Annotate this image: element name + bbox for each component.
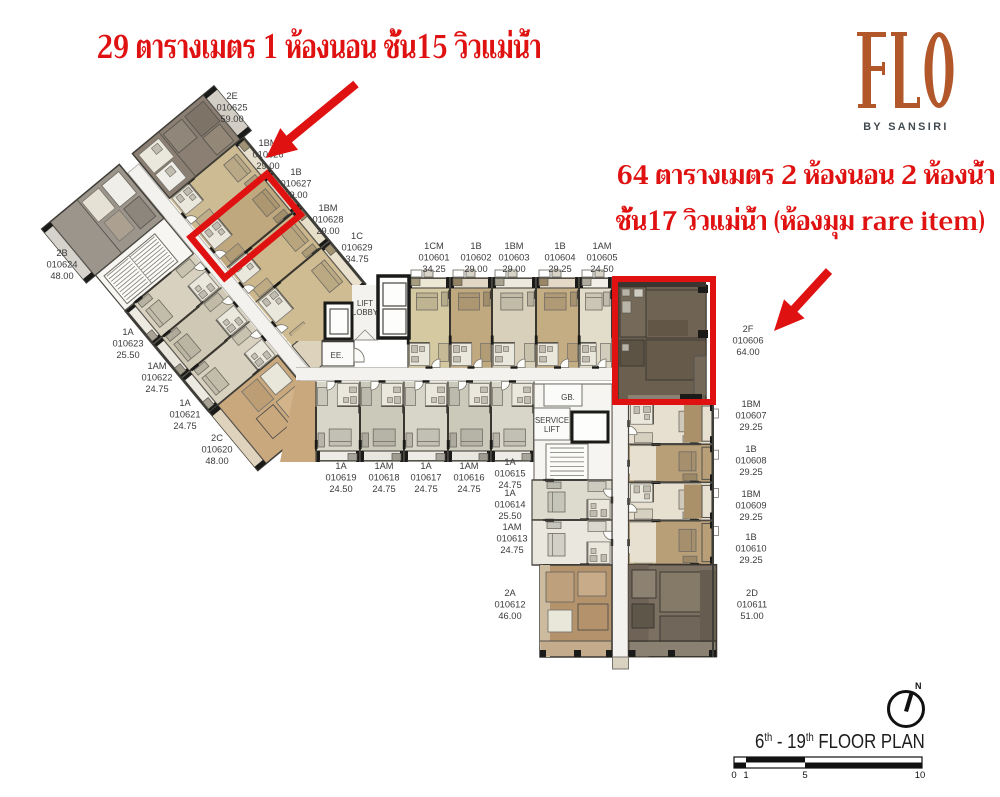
svg-text:SERVICE: SERVICE [535,416,569,425]
svg-text:010609: 010609 [735,501,766,511]
svg-text:29.00: 29.00 [464,264,487,274]
svg-text:29.25: 29.25 [739,422,762,432]
svg-text:1BM: 1BM [318,203,337,213]
svg-text:1A: 1A [420,461,432,471]
svg-text:6th - 19th FLOOR PLAN: 6th - 19th FLOOR PLAN [755,729,925,752]
svg-text:010608: 010608 [735,456,766,466]
svg-text:24.75: 24.75 [414,484,437,494]
svg-text:1AM: 1AM [592,241,611,251]
svg-text:1BM: 1BM [741,399,760,409]
svg-text:2C: 2C [211,433,223,443]
svg-text:1B: 1B [745,444,756,454]
svg-text:010617: 010617 [410,473,441,483]
svg-text:34.25: 34.25 [422,264,445,274]
svg-text:010614: 010614 [494,500,525,510]
svg-text:1AM: 1AM [502,522,521,532]
svg-text:24.75: 24.75 [498,480,521,490]
svg-text:2B: 2B [56,248,67,258]
svg-text:010628: 010628 [312,215,343,225]
svg-text:46.00: 46.00 [498,611,521,621]
svg-text:24.75: 24.75 [145,384,168,394]
svg-text:1B: 1B [290,167,301,177]
svg-text:010607: 010607 [735,411,766,421]
svg-text:1AM: 1AM [374,461,393,471]
svg-text:2A: 2A [504,588,516,598]
svg-text:1: 1 [743,770,748,781]
svg-text:010604: 010604 [544,253,575,263]
svg-text:2D: 2D [746,588,758,598]
svg-text:010605: 010605 [586,253,617,263]
svg-text:010620: 010620 [201,445,232,455]
svg-text:24.75: 24.75 [457,484,480,494]
svg-text:1CM: 1CM [424,241,444,251]
svg-text:BY SANSIRI: BY SANSIRI [863,121,949,133]
svg-text:010629: 010629 [341,243,372,253]
svg-text:24.75: 24.75 [372,484,395,494]
svg-text:010623: 010623 [112,339,143,349]
svg-text:48.00: 48.00 [50,271,73,281]
svg-text:1B: 1B [745,532,756,542]
svg-text:29.00: 29.00 [316,226,339,236]
svg-text:5: 5 [802,770,807,781]
svg-text:1B: 1B [470,241,481,251]
svg-text:24.50: 24.50 [329,484,352,494]
svg-text:29.25: 29.25 [739,555,762,565]
svg-text:1BM: 1BM [504,241,523,251]
svg-text:010618: 010618 [368,473,399,483]
svg-text:29.00: 29.00 [502,264,525,274]
svg-text:1A: 1A [335,461,347,471]
svg-text:29.25: 29.25 [739,467,762,477]
svg-text:010610: 010610 [735,544,766,554]
svg-text:010616: 010616 [453,473,484,483]
svg-text:1C: 1C [351,231,363,241]
svg-text:1AM: 1AM [147,361,166,371]
svg-text:1BM: 1BM [741,489,760,499]
svg-text:010615: 010615 [494,469,525,479]
svg-text:010613: 010613 [496,534,527,544]
svg-text:010612: 010612 [494,600,525,610]
svg-text:1A: 1A [504,457,516,467]
svg-text:010624: 010624 [46,260,77,270]
svg-text:010622: 010622 [141,373,172,383]
svg-text:010602: 010602 [460,253,491,263]
svg-text:010621: 010621 [169,410,200,420]
svg-text:10: 10 [915,770,926,781]
svg-text:51.00: 51.00 [740,611,763,621]
svg-text:25.50: 25.50 [498,511,521,521]
svg-text:48.00: 48.00 [205,456,228,466]
svg-text:2E: 2E [226,91,237,101]
svg-text:34.75: 34.75 [345,254,368,264]
svg-text:010606: 010606 [732,336,763,346]
svg-text:010627: 010627 [280,179,311,189]
svg-text:LIFT: LIFT [544,425,560,434]
svg-text:1A: 1A [122,327,134,337]
svg-text:24.50: 24.50 [590,264,613,274]
svg-text:010625: 010625 [216,103,247,113]
svg-text:25.50: 25.50 [116,350,139,360]
svg-text:59.00: 59.00 [220,114,243,124]
svg-text:24.75: 24.75 [500,545,523,555]
svg-text:010601: 010601 [418,253,449,263]
svg-text:LOBBY: LOBBY [352,308,379,317]
svg-text:2F: 2F [743,324,754,334]
svg-text:010611: 010611 [737,600,767,610]
svg-text:64.00: 64.00 [736,347,759,357]
svg-text:29.25: 29.25 [548,264,571,274]
svg-text:29.25: 29.25 [739,512,762,522]
svg-text:24.75: 24.75 [173,421,196,431]
svg-text:1A: 1A [179,398,191,408]
svg-text:010603: 010603 [498,253,529,263]
svg-text:N: N [915,681,922,691]
svg-text:1AM: 1AM [459,461,478,471]
svg-text:010619: 010619 [325,473,356,483]
svg-text:GB.: GB. [561,393,575,402]
svg-text:LIFT: LIFT [357,299,373,308]
svg-text:EE.: EE. [331,351,344,360]
svg-text:0: 0 [731,770,736,781]
svg-text:1B: 1B [554,241,565,251]
svg-text:29.00: 29.00 [256,161,279,171]
